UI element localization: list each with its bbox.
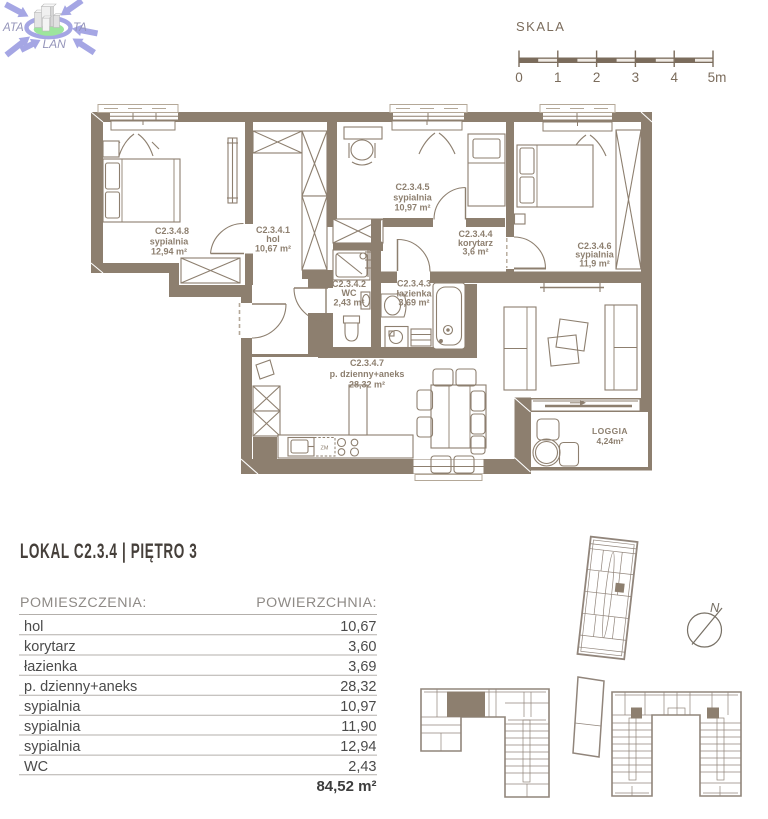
svg-text:2,43 m²: 2,43 m² [333,298,364,308]
svg-text:28,32 m²: 28,32 m² [349,380,385,390]
svg-text:WC: WC [24,759,48,775]
svg-text:sypialnia: sypialnia [150,237,190,247]
svg-text:LOGGIA: LOGGIA [592,426,628,436]
svg-text:ZM: ZM [321,446,329,452]
svg-text:84,52 m²: 84,52 m² [316,778,376,795]
svg-text:3: 3 [632,70,640,85]
svg-text:11,90: 11,90 [341,719,376,735]
svg-text:SKALA: SKALA [516,19,565,34]
svg-text:łazienka: łazienka [24,659,78,675]
svg-text:C2.3.4.5: C2.3.4.5 [395,182,429,192]
svg-text:C2.3.4.7: C2.3.4.7 [350,358,384,368]
svg-text:2: 2 [593,70,601,85]
svg-text:LOKAL C2.3.4 | PIĘTRO 3: LOKAL C2.3.4 | PIĘTRO 3 [20,539,197,563]
svg-text:12,94: 12,94 [340,739,376,755]
svg-text:10,97 m²: 10,97 m² [394,203,430,213]
svg-text:sypialnia: sypialnia [24,699,81,715]
svg-text:sypialnia: sypialnia [24,719,81,735]
svg-text:11,9 m²: 11,9 m² [579,259,610,269]
svg-text:C2.3.4.3: C2.3.4.3 [397,279,431,289]
svg-text:TA: TA [73,22,87,34]
svg-text:WC: WC [342,288,357,298]
svg-text:10,97: 10,97 [340,699,376,715]
svg-text:4: 4 [670,70,678,85]
svg-text:3,69 m²: 3,69 m² [398,298,429,308]
svg-text:N: N [710,600,720,615]
svg-text:POMIESZCZENIA:: POMIESZCZENIA: [20,595,147,611]
svg-text:28,32: 28,32 [340,679,376,695]
svg-text:12,94 m²: 12,94 m² [151,247,187,257]
svg-text:4,24m²: 4,24m² [597,436,624,446]
svg-text:C2.3.4.8: C2.3.4.8 [155,226,189,236]
svg-text:3,60: 3,60 [348,639,376,655]
svg-text:hol: hol [266,234,280,244]
svg-text:3,69: 3,69 [348,659,376,675]
svg-text:sypialnia: sypialnia [393,193,433,203]
svg-text:0: 0 [515,70,523,85]
svg-text:10,67: 10,67 [340,619,376,635]
svg-text:POWIERZCHNIA:: POWIERZCHNIA: [256,595,377,611]
svg-text:10,67 m²: 10,67 m² [255,244,291,254]
svg-text:ATA: ATA [2,22,24,34]
svg-text:5m: 5m [708,70,727,85]
svg-text:1: 1 [554,70,562,85]
svg-text:3,6 m²: 3,6 m² [462,247,488,257]
svg-text:p. dzienny+aneks: p. dzienny+aneks [24,679,137,695]
svg-text:sypialnia: sypialnia [24,739,81,755]
svg-text:hol: hol [24,619,43,635]
svg-text:p. dzienny+aneks: p. dzienny+aneks [330,369,405,379]
svg-text:LAN: LAN [43,37,67,51]
svg-text:korytarz: korytarz [24,639,76,655]
svg-text:2,43: 2,43 [348,759,376,775]
